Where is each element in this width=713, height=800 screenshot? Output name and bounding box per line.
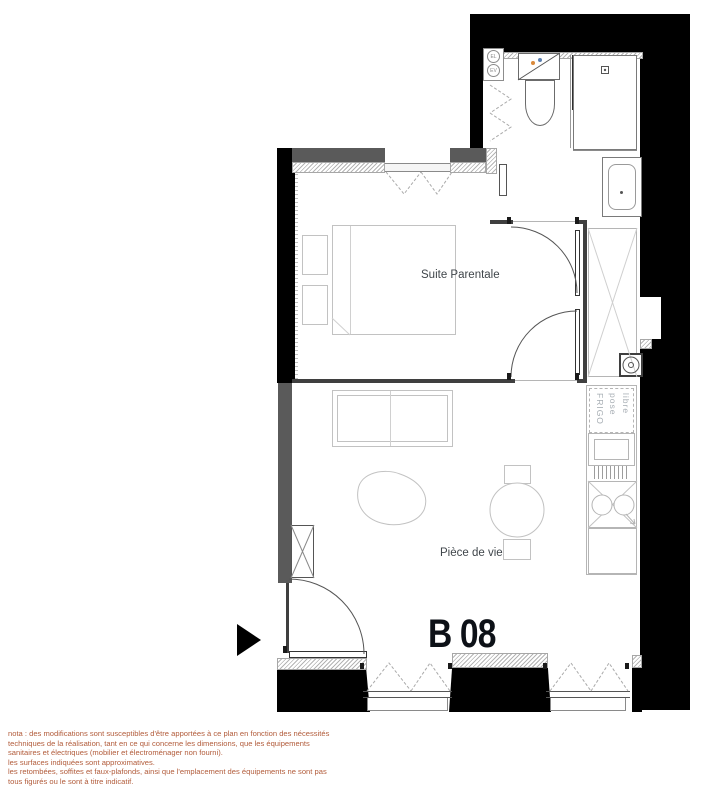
room-label-living: Pièce de vie xyxy=(440,547,503,559)
footer-note-line: les retombées, soffites et faux-plafonds… xyxy=(8,767,329,777)
bed-fold-line xyxy=(332,318,350,335)
closet-bifold-icon xyxy=(490,85,511,141)
shower-drain-dot xyxy=(604,69,606,71)
footer-notes: nota : des modifications sont susceptibl… xyxy=(8,729,329,787)
footer-note-line: nota : des modifications sont susceptibl… xyxy=(8,729,329,739)
shaft-cross xyxy=(291,525,314,578)
bathroom-door-arc xyxy=(511,227,577,293)
wc-mark-blue xyxy=(538,58,542,62)
unit-number-label: B 08 xyxy=(428,612,496,657)
coffee-table xyxy=(358,471,426,524)
footer-note-line: techniques de la réalisation, tant en ce… xyxy=(8,739,329,749)
sink-bowl-right xyxy=(614,495,634,515)
footer-note-line: les surfaces indiquées sont approximativ… xyxy=(8,758,329,768)
bedroom-door-arc xyxy=(511,311,577,377)
dining-table xyxy=(490,483,544,537)
footer-note-line: sanitaires et électriques (mobilier et é… xyxy=(8,748,329,758)
room-label-bedroom: Suite Parentale xyxy=(421,269,500,281)
sink-bowl-left xyxy=(592,495,612,515)
dressing-cross xyxy=(588,228,637,377)
wc-mark-orange xyxy=(531,61,535,65)
entrance-arrow-icon xyxy=(237,624,261,656)
floor-plan-page: EL EV FRIGO pose libre xyxy=(0,0,713,800)
wc-diagonal xyxy=(518,53,560,80)
plan-linework xyxy=(0,0,713,800)
window2-casement-icon xyxy=(550,663,628,691)
footer-note-line: tous figurés ou le sont à titre indicati… xyxy=(8,777,329,787)
window1-casement-icon xyxy=(367,663,450,691)
entrance-door-arc xyxy=(289,579,364,654)
bedroom-window-casement-icon xyxy=(386,172,452,194)
hinge-marks xyxy=(283,217,629,669)
